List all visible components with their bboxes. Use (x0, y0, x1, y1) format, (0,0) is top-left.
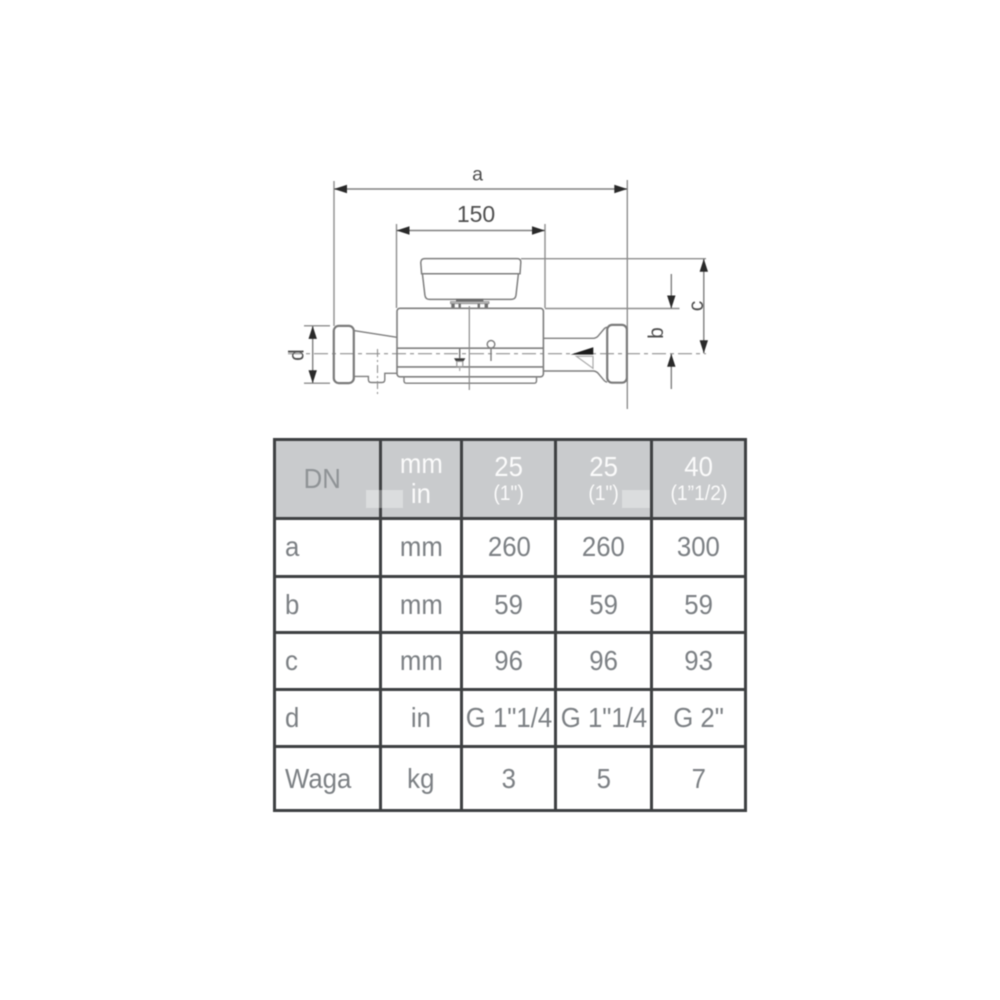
svg-text:a: a (472, 164, 483, 186)
svg-text:150: 150 (457, 201, 495, 227)
svg-text:d: d (286, 349, 309, 361)
svg-text:b: b (645, 327, 668, 339)
svg-text:c: c (685, 301, 708, 312)
